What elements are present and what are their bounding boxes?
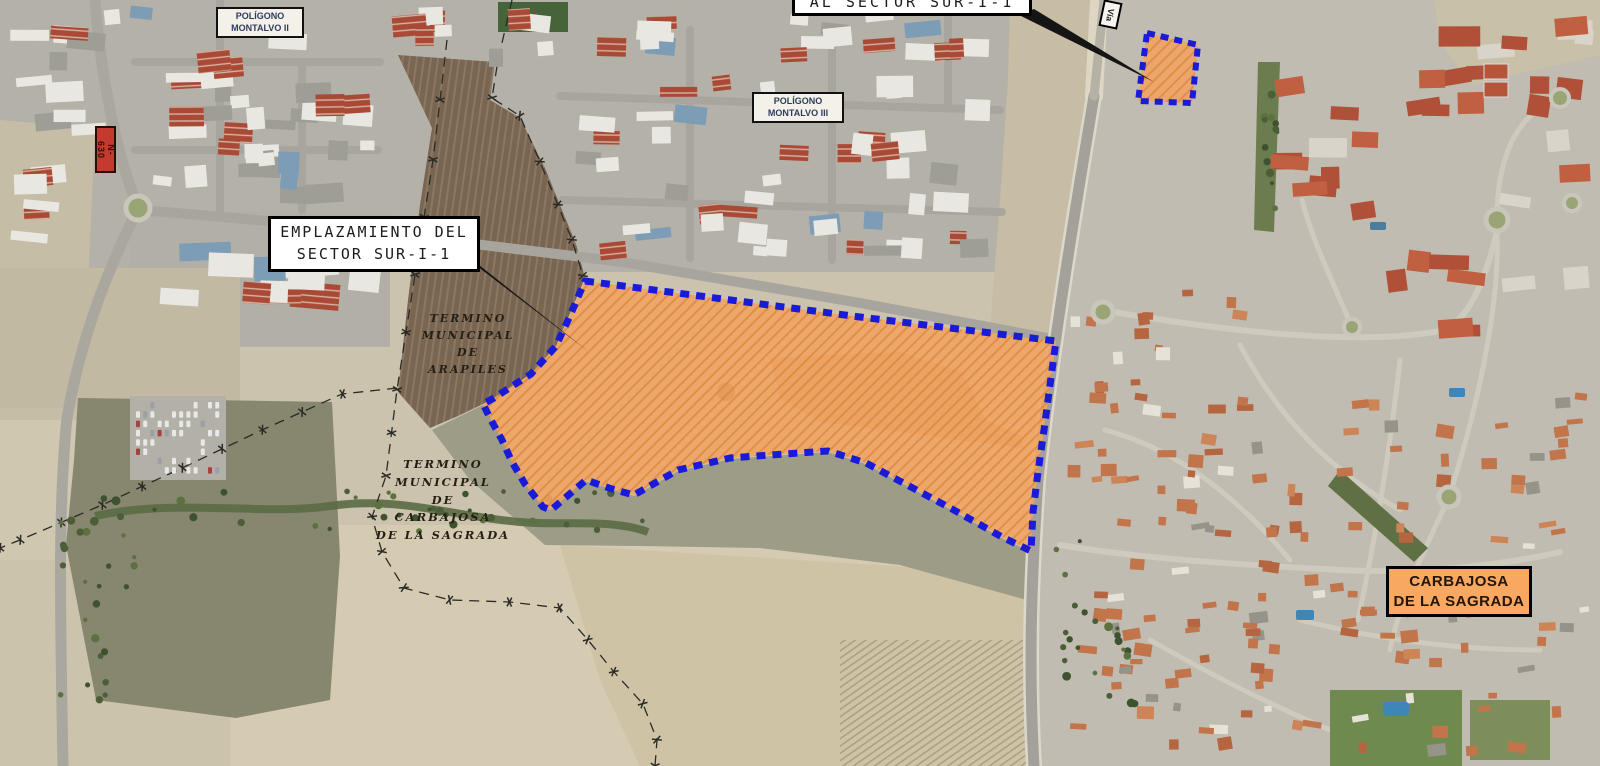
swimming-pool (1383, 702, 1409, 716)
termino-municipal-arapiles-label: TERMINO MUNICIPAL DE ARAPILES (408, 310, 528, 378)
swimming-pool (1449, 388, 1465, 397)
via-text: Vía (1104, 7, 1116, 22)
poligono-montalvo-iii-label: POLÍGONO MONTALVO III (752, 92, 844, 123)
n630-text: N-630 (96, 140, 116, 158)
swimming-pool (1370, 222, 1386, 230)
roundabout (1564, 195, 1580, 211)
roundabout (1551, 89, 1569, 107)
carbajosa-town-label: CARBAJOSA DE LA SAGRADA (1386, 566, 1532, 617)
tennis-court (1484, 82, 1508, 97)
poligono-montalvo-ii-label: POLÍGONO MONTALVO II (216, 7, 304, 38)
emplazamiento-sector-label: EMPLAZAMIENTO DEL SECTOR SUR-I-1 (268, 216, 480, 272)
al-sector-label: AL SECTOR SUR-I-1 (792, 0, 1032, 16)
roundabout (1486, 209, 1508, 231)
termino-municipal-carbajosa-label: TERMINO MUNICIPAL DE CARBAJOSA DE LA SAG… (368, 456, 518, 545)
tennis-court (1484, 64, 1508, 79)
roundabout (1093, 302, 1113, 322)
roundabout (126, 196, 150, 220)
sector-sur-i-1-annex-boundary (1138, 33, 1198, 103)
roundabout (1344, 319, 1360, 335)
roundabout (1439, 487, 1459, 507)
n630-shield: N-630 (95, 126, 116, 173)
swimming-pool (1296, 610, 1314, 620)
site-plan-map: AL SECTOR SUR-I-1 POLÍGONO MONTALVO II P… (0, 0, 1600, 766)
al-sector-text: AL SECTOR SUR-I-1 (810, 0, 1015, 11)
